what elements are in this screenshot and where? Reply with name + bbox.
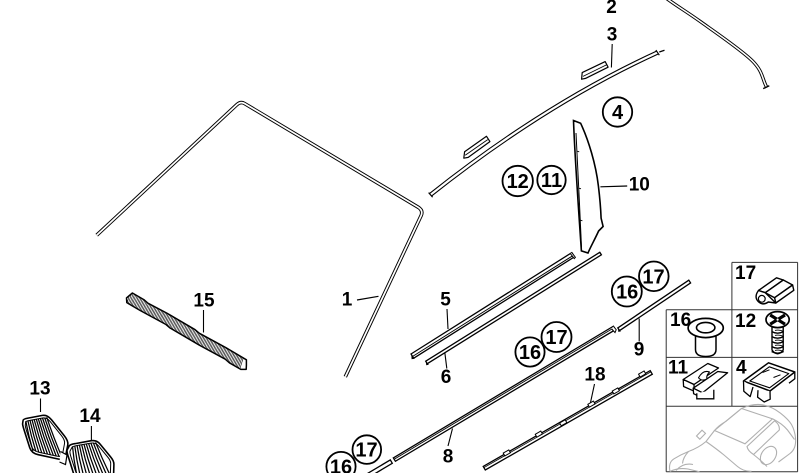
- svg-text:4: 4: [612, 102, 624, 124]
- svg-text:11: 11: [668, 358, 689, 379]
- svg-text:11: 11: [541, 170, 562, 192]
- svg-text:16: 16: [519, 342, 541, 364]
- svg-text:14: 14: [79, 406, 101, 427]
- svg-text:12: 12: [735, 311, 756, 332]
- svg-text:1: 1: [342, 290, 353, 311]
- svg-text:16: 16: [330, 457, 352, 473]
- svg-text:18: 18: [584, 365, 605, 386]
- svg-text:8: 8: [443, 447, 454, 468]
- svg-text:17: 17: [735, 263, 756, 284]
- svg-text:5: 5: [440, 290, 451, 311]
- svg-text:3: 3: [607, 25, 618, 46]
- svg-text:6: 6: [441, 367, 452, 388]
- svg-text:16: 16: [616, 282, 638, 304]
- svg-text:10: 10: [629, 175, 650, 196]
- svg-text:12: 12: [507, 171, 529, 193]
- svg-text:9: 9: [634, 340, 645, 361]
- svg-text:17: 17: [642, 266, 664, 288]
- svg-text:17: 17: [545, 327, 567, 349]
- svg-text:17: 17: [355, 440, 377, 462]
- svg-text:13: 13: [29, 379, 50, 400]
- svg-text:15: 15: [193, 290, 215, 311]
- svg-text:2: 2: [606, 0, 617, 18]
- svg-text:4: 4: [736, 358, 747, 379]
